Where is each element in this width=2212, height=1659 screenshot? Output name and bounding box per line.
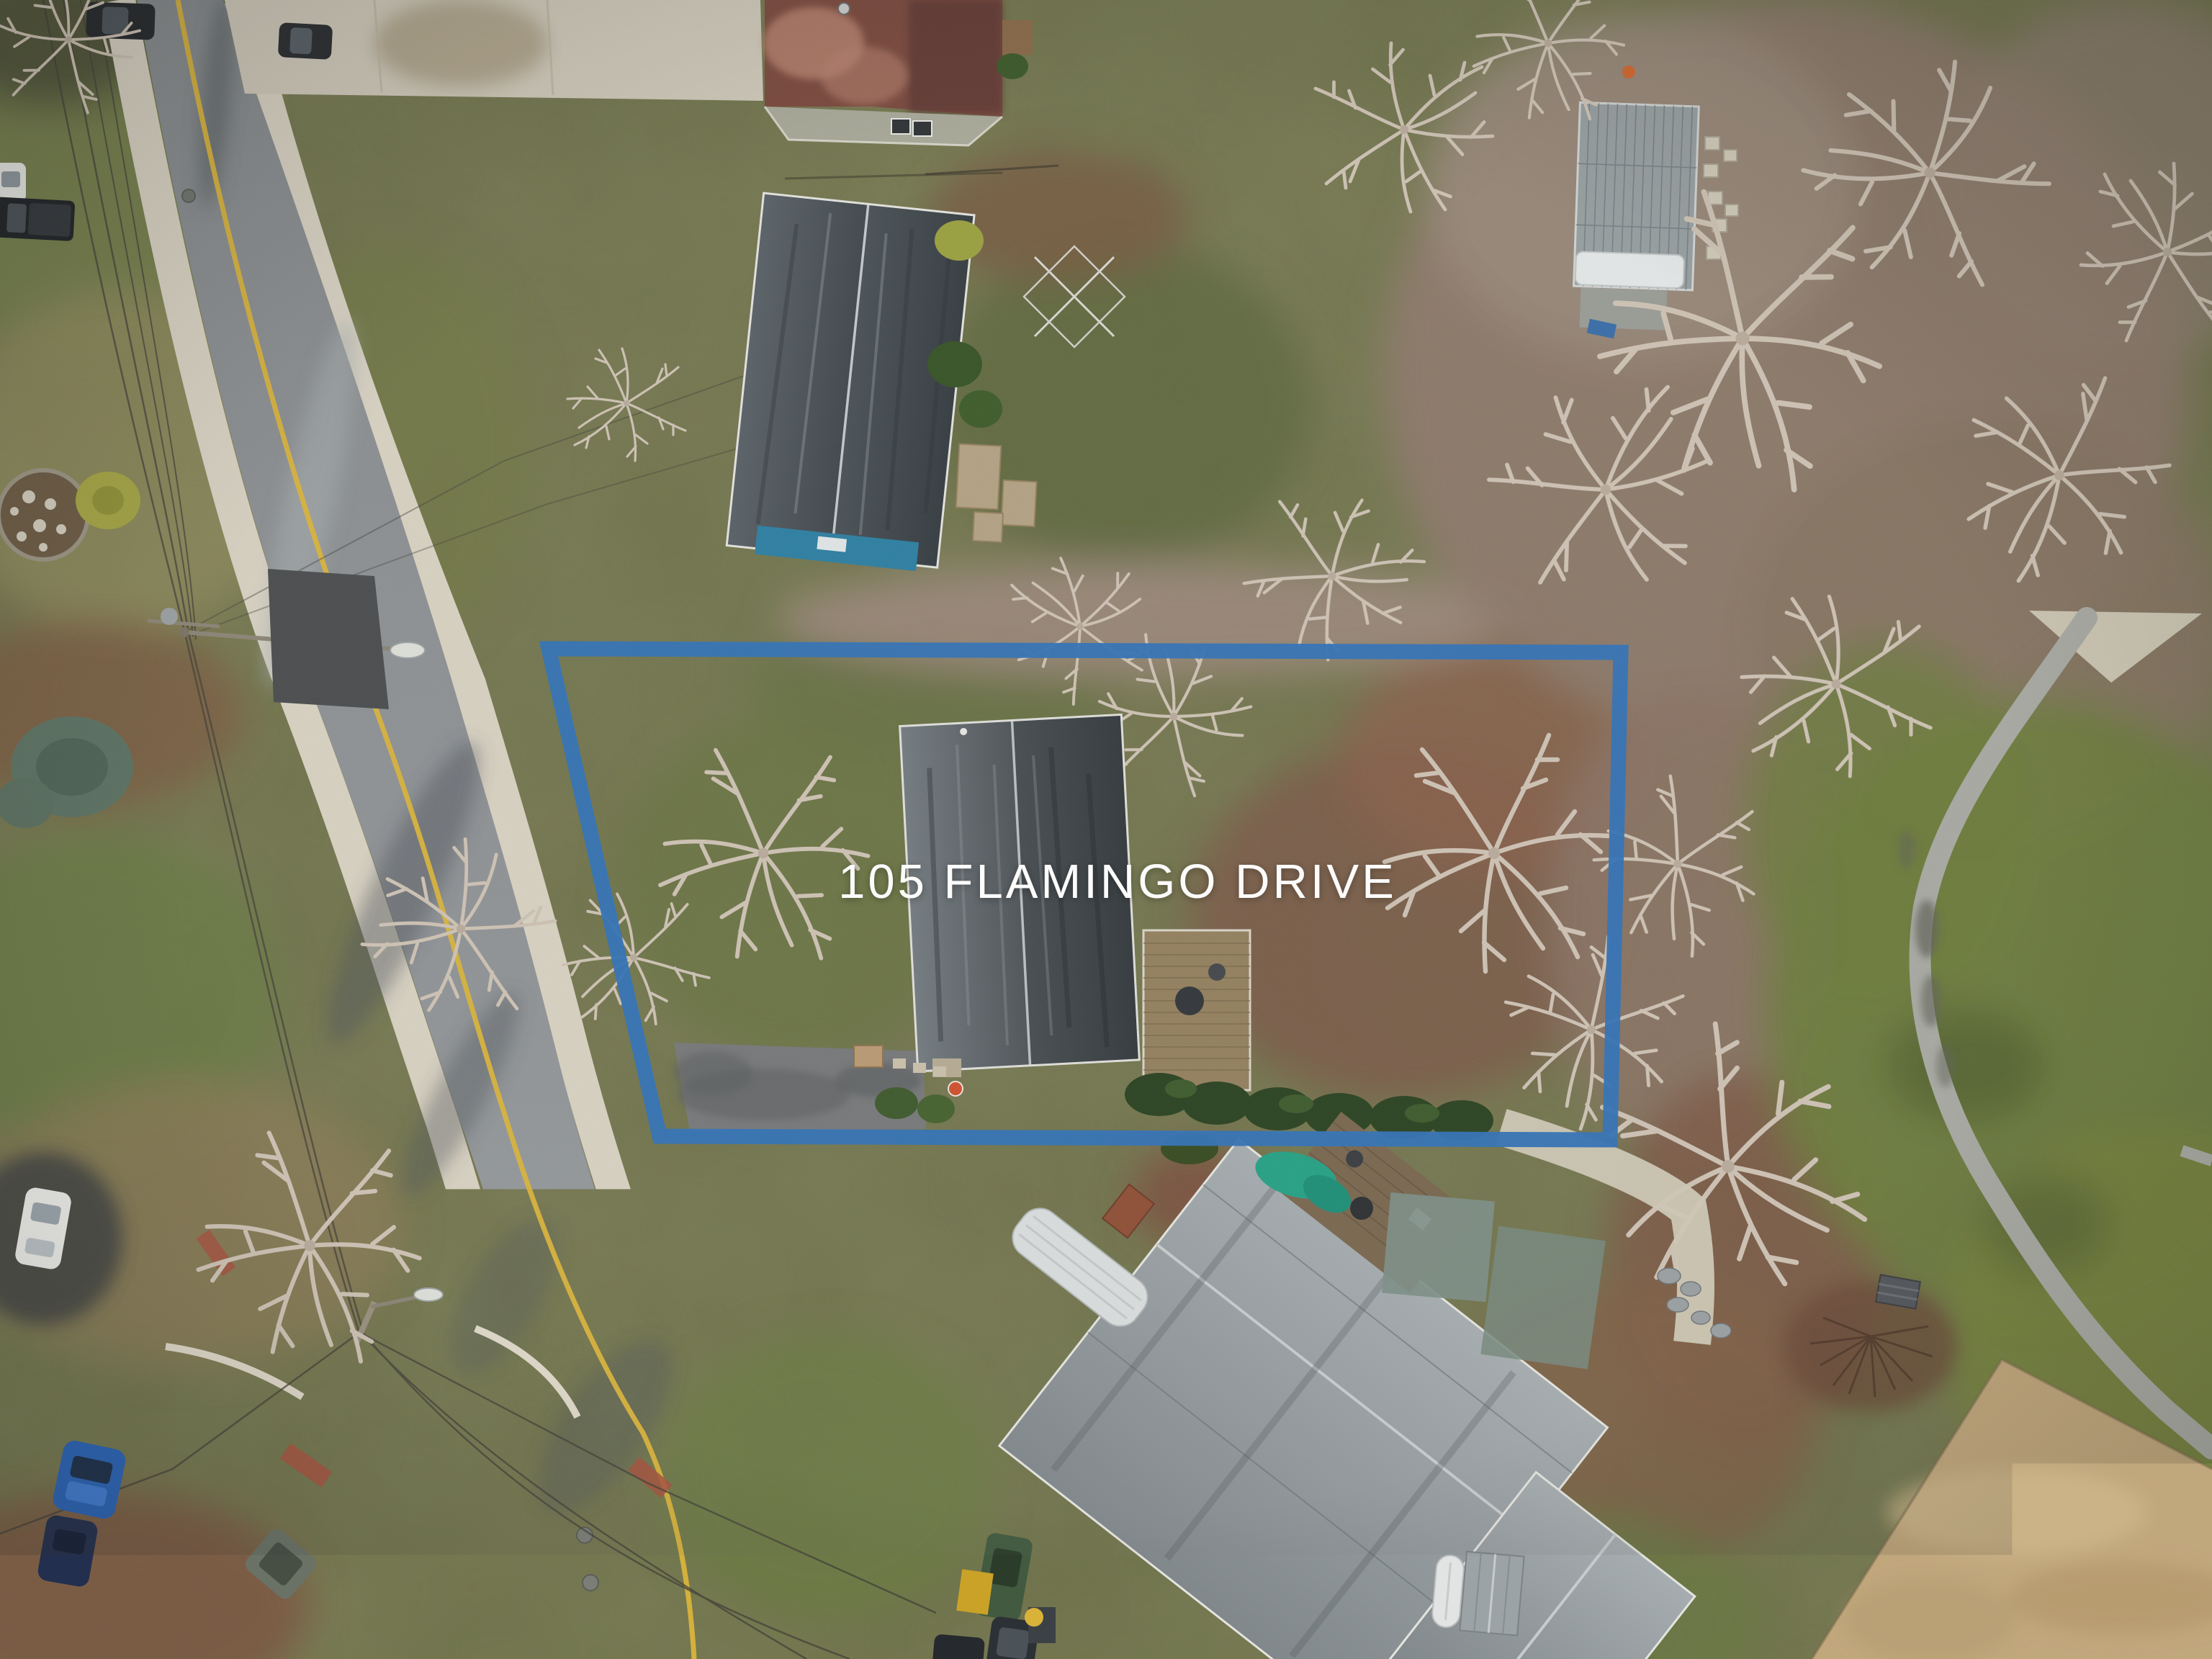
aerial-photo-canvas: 105 FLAMINGO DRIVE [0,0,2212,1659]
aerial-photo: 105 FLAMINGO DRIVE [0,0,2212,1659]
vignette [0,0,2212,1659]
